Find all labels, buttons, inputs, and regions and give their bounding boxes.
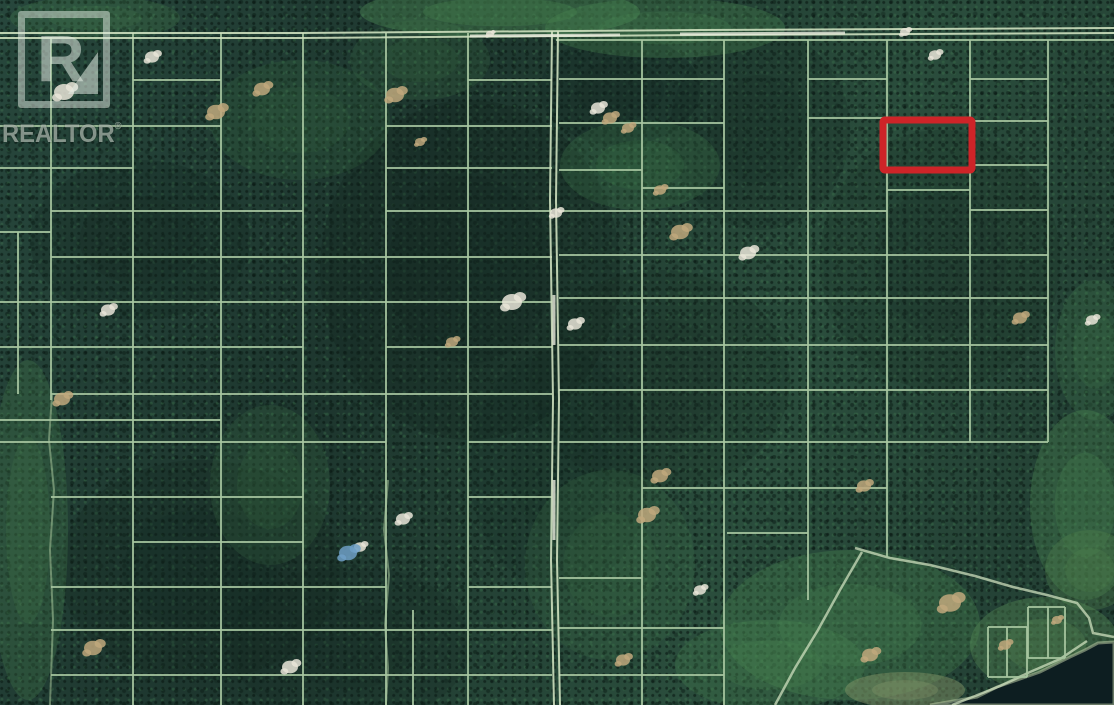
- forest-clearing: [567, 325, 574, 331]
- forest-clearing: [693, 591, 699, 596]
- forest-clearing: [100, 311, 107, 317]
- terrain-patch: [48, 6, 142, 30]
- forest-clearing: [615, 661, 622, 667]
- listing-photo: R REALTOR®: [0, 0, 1114, 705]
- forest-clearing: [549, 214, 555, 219]
- forest-clearing: [218, 103, 229, 112]
- forest-clearing: [82, 649, 91, 656]
- forest-clearing: [1085, 321, 1091, 326]
- forest-clearing: [144, 58, 151, 64]
- forest-clearing: [906, 27, 912, 32]
- forest-clearing: [453, 336, 460, 342]
- forest-clearing: [153, 50, 162, 57]
- forest-clearing: [63, 391, 73, 399]
- forest-clearing: [936, 49, 943, 55]
- terrain-patch: [711, 75, 810, 185]
- forest-clearing: [856, 487, 863, 493]
- forest-clearing: [682, 223, 693, 232]
- forest-clearing: [899, 33, 904, 37]
- forest-clearing: [860, 656, 868, 662]
- forest-clearing: [52, 400, 60, 406]
- forest-clearing: [636, 516, 645, 523]
- forest-clearing: [404, 512, 413, 519]
- terrain-patch: [388, 177, 553, 364]
- road-surface: [680, 33, 845, 34]
- forest-clearing: [937, 605, 948, 614]
- forest-clearing: [599, 101, 608, 108]
- forest-clearing: [205, 113, 214, 120]
- forest-clearing: [624, 653, 633, 660]
- forest-clearing: [669, 233, 678, 240]
- forest-clearing: [337, 554, 346, 561]
- forest-clearing: [661, 184, 668, 190]
- terrain-patch: [251, 87, 350, 153]
- forest-clearing: [109, 303, 118, 310]
- forest-clearing: [590, 109, 597, 115]
- terrain-patch: [382, 38, 459, 82]
- forest-clearing: [421, 137, 427, 142]
- forest-clearing: [865, 479, 874, 486]
- forest-clearing: [1051, 621, 1056, 625]
- forest-clearing: [557, 207, 564, 213]
- forest-clearing: [629, 122, 636, 128]
- forest-clearing: [952, 592, 966, 603]
- terrain-patch: [6, 437, 50, 624]
- terrain-patch: [596, 140, 684, 190]
- terrain-patch: [80, 196, 201, 284]
- forest-clearing: [653, 191, 659, 196]
- forest-clearing: [611, 111, 620, 118]
- forest-clearing: [66, 82, 78, 92]
- forest-clearing: [350, 544, 361, 553]
- forest-clearing: [661, 468, 671, 476]
- forest-clearing: [291, 659, 301, 667]
- forest-clearing: [738, 254, 746, 260]
- forest-clearing: [52, 94, 62, 102]
- forest-clearing: [485, 35, 489, 38]
- forest-clearing: [650, 477, 658, 483]
- forest-clearing: [445, 343, 451, 348]
- forest-clearing: [621, 129, 627, 134]
- forest-clearing: [928, 56, 934, 61]
- forest-clearing: [414, 143, 419, 147]
- parcel-overlay: [0, 0, 1114, 705]
- forest-clearing: [395, 520, 402, 526]
- forest-clearing: [384, 96, 393, 103]
- forest-clearing: [95, 639, 106, 648]
- forest-clearing: [649, 506, 660, 515]
- forest-clearing: [749, 245, 759, 253]
- forest-clearing: [1021, 311, 1030, 318]
- forest-clearing: [361, 541, 368, 547]
- forest-clearing: [491, 30, 496, 34]
- forest-clearing: [1012, 319, 1019, 325]
- forest-clearing: [500, 304, 510, 312]
- forest-clearing: [1093, 314, 1100, 320]
- forest-clearing: [701, 584, 708, 590]
- forest-clearing: [1006, 639, 1013, 645]
- forest-clearing: [252, 90, 260, 96]
- terrain-patch: [576, 60, 664, 121]
- forest-clearing: [263, 81, 273, 89]
- forest-clearing: [397, 86, 408, 95]
- terrain-patch: [872, 680, 938, 700]
- forest-clearing: [280, 668, 288, 674]
- forest-clearing: [576, 317, 585, 324]
- forest-clearing: [871, 647, 881, 655]
- forest-clearing: [602, 119, 609, 125]
- forest-clearing: [998, 646, 1004, 651]
- terrain-patch: [1065, 548, 1114, 592]
- forest-clearing: [1058, 615, 1064, 620]
- terrain-patch: [237, 441, 303, 529]
- forest-clearing: [514, 292, 526, 302]
